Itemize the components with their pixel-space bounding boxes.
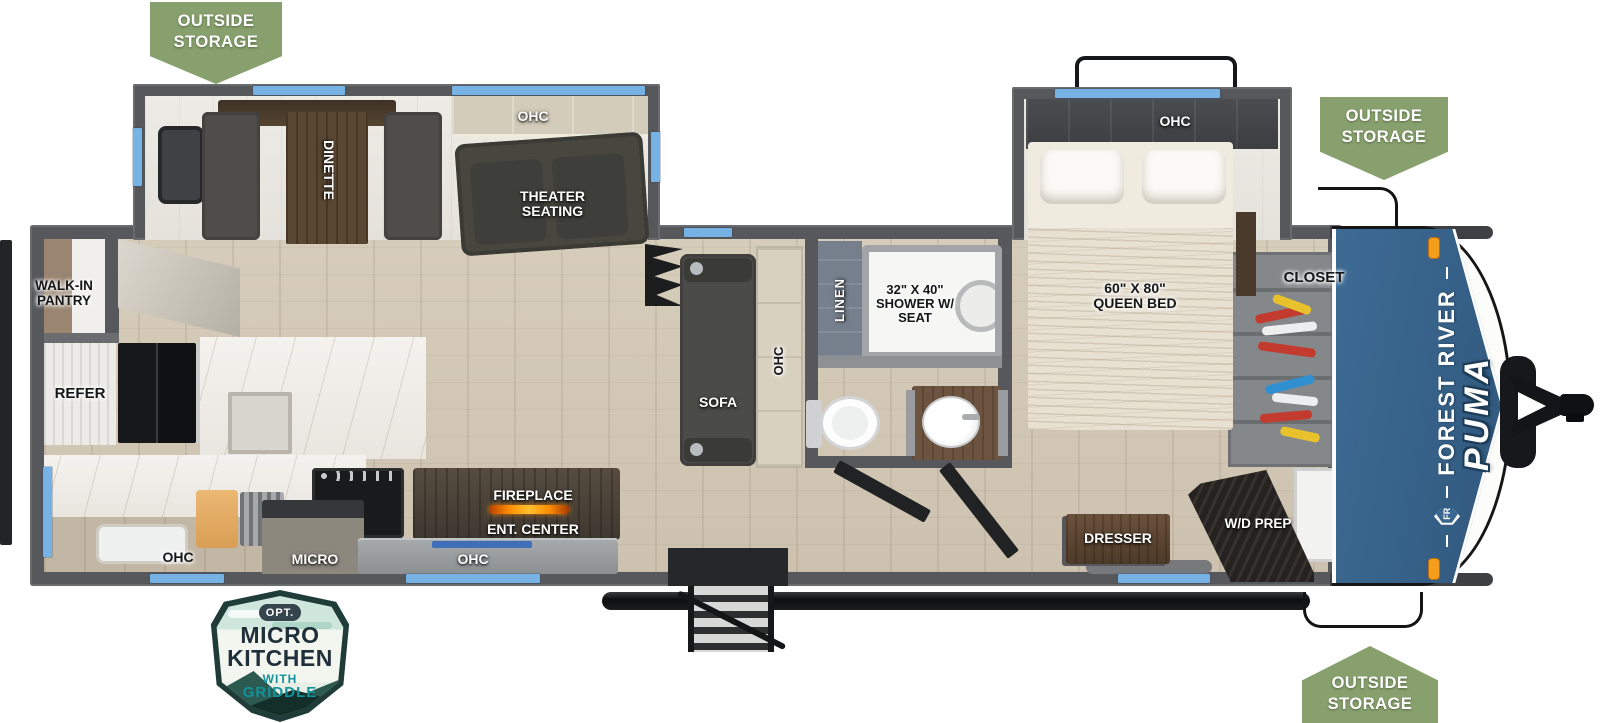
pillow — [1040, 150, 1124, 204]
brand-name-text: FOREST RIVER — [1434, 289, 1460, 476]
window-strip — [1055, 89, 1220, 98]
pantry-wall-lower — [44, 333, 119, 343]
label-dresser: DRESSER — [1066, 528, 1170, 550]
badge-text: OUTSIDE STORAGE — [1323, 673, 1417, 714]
label-ohc-galley: OHC — [433, 551, 513, 569]
brand-dash — [1446, 535, 1448, 547]
shower-seat — [955, 280, 1002, 332]
badge-text: OUTSIDE STORAGE — [171, 11, 261, 52]
mattress-texture — [1028, 228, 1233, 430]
forest-river-logo-icon: FR — [1434, 508, 1460, 525]
window-strip — [651, 132, 660, 182]
label-fireplace: FIREPLACE — [473, 487, 593, 505]
kitchen-cabinet-door — [228, 392, 292, 454]
micro-kitchen-line2: KITCHEN — [214, 647, 346, 671]
hitch-latch — [1566, 414, 1584, 422]
bed-slide-handle — [1075, 56, 1237, 88]
brand-forest-river: FR FOREST RIVER — [1434, 267, 1460, 547]
refrigerator-doors — [118, 343, 196, 443]
brand-model-text: PUMA — [1458, 355, 1497, 471]
outside-storage-badge-bottom-right: OUTSIDE STORAGE — [1302, 646, 1438, 723]
vanity-sink — [922, 396, 980, 448]
label-wd-prep: W/D PREP — [1216, 502, 1300, 546]
label-linen: LINEN — [828, 256, 852, 344]
marker-light — [1428, 558, 1440, 580]
window-strip — [150, 574, 224, 583]
window-strip — [1118, 574, 1210, 583]
forest-river-logo-abbr: FR — [1436, 505, 1458, 523]
label-shower: 32" X 40" SHOWER W/ SEAT — [868, 270, 962, 338]
micro-kitchen-badge: OPT. MICRO KITCHEN WITH GRIDDLE — [208, 590, 352, 722]
floorplan-canvas: FR FOREST RIVER PUMA OUTSIDE STORAGE OUT… — [0, 0, 1600, 723]
rear-bumper — [0, 240, 12, 545]
window-strip — [43, 467, 52, 557]
label-dinette: DINETTE — [316, 126, 340, 214]
cutting-board — [196, 490, 238, 548]
window-strip — [133, 128, 142, 186]
brand-dash — [1446, 486, 1448, 498]
brand-dash — [1446, 267, 1448, 279]
vanity-side-right — [998, 390, 1008, 456]
shower-ledge — [818, 356, 1002, 368]
galley-ohc-accent — [432, 541, 532, 548]
label-ohc-theater: OHC — [493, 106, 573, 128]
opt-pill-text: OPT. — [266, 607, 294, 619]
dinette-bench-right — [384, 112, 442, 240]
label-refer: REFER — [44, 384, 116, 404]
window-strip — [684, 228, 732, 237]
marker-light — [1428, 237, 1440, 259]
label-theater-seating: THEATER SEATING — [495, 182, 610, 226]
toilet-seat — [832, 406, 868, 440]
label-sofa: SOFA — [678, 392, 758, 414]
entry-landing — [668, 548, 788, 586]
micro-kitchen-badge-inner: OPT. MICRO KITCHEN WITH GRIDDLE — [214, 596, 346, 716]
sofa — [680, 254, 756, 466]
fireplace-flame — [489, 505, 569, 514]
window-strip — [452, 86, 645, 95]
pillow — [1142, 150, 1226, 204]
sofa-cupholder-top — [690, 262, 703, 275]
dinette-bench-left — [202, 112, 260, 240]
opt-pill: OPT. — [259, 604, 301, 621]
label-walk-in-pantry: WALK-IN PANTRY — [18, 272, 110, 316]
sofa-cupholder-bottom — [690, 443, 703, 456]
label-queen-bed: 60" X 80" QUEEN BED — [1080, 272, 1190, 320]
cap-storage-outline-bottom — [1303, 592, 1423, 628]
vanity-side-left — [906, 390, 915, 456]
outside-storage-badge-top-right: OUTSIDE STORAGE — [1320, 97, 1448, 180]
window-strip — [253, 86, 345, 95]
window-strip — [406, 574, 540, 583]
label-ohc-bedroom: OHC — [1135, 112, 1215, 132]
outside-storage-badge-top-left: OUTSIDE STORAGE — [150, 2, 282, 84]
brand-model-puma: PUMA — [1460, 321, 1494, 505]
label-ohc-sofa: OHC — [768, 327, 790, 395]
badge-text: OUTSIDE STORAGE — [1339, 106, 1429, 147]
vanity-faucet — [962, 414, 980, 420]
slideout-side-window — [158, 126, 204, 204]
label-ent-center: ENT. CENTER — [463, 521, 603, 539]
label-micro: MICRO — [275, 550, 355, 570]
nightstand — [1236, 212, 1256, 296]
micro-kitchen-line4: GRIDDLE — [214, 686, 346, 701]
stove-knobs — [318, 471, 398, 481]
cap-storage-outline-top — [1318, 187, 1398, 229]
label-closet: CLOSET — [1268, 268, 1360, 288]
hitch-coupler — [1560, 394, 1594, 416]
label-ohc-kitchen: OHC — [138, 548, 218, 568]
